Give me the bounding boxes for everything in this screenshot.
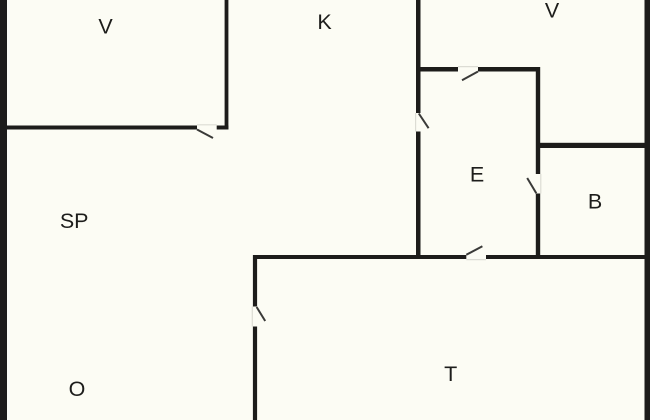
svg-text:T: T <box>444 362 457 386</box>
svg-text:SP: SP <box>60 209 89 233</box>
svg-text:E: E <box>470 163 484 187</box>
svg-text:O: O <box>69 377 86 401</box>
svg-text:K: K <box>317 10 332 34</box>
svg-text:V: V <box>98 15 113 39</box>
svg-text:V: V <box>545 0 560 23</box>
svg-text:B: B <box>588 189 602 213</box>
